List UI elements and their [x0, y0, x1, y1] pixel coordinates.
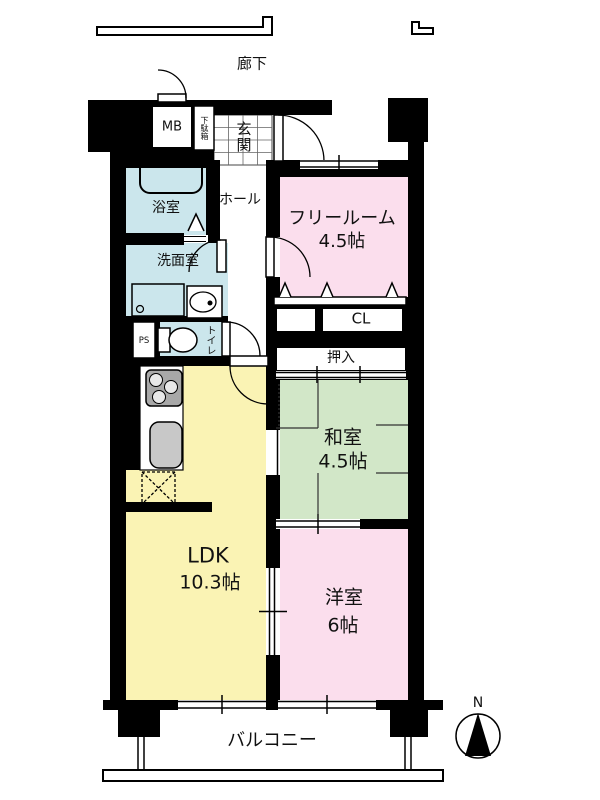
- toilet-door-leaf: [222, 322, 230, 356]
- washitsu-size: 4.5帖: [318, 453, 367, 472]
- closet-track: [274, 297, 406, 305]
- cl-label: CL: [352, 312, 371, 327]
- yoshitsu-size: 6帖: [327, 617, 358, 636]
- genkan-label: 玄関: [236, 121, 251, 153]
- freeroom-name: フリールーム: [288, 210, 395, 228]
- ldk-door-leaf: [230, 356, 268, 366]
- yoshitsu-name: 洋室: [325, 589, 363, 608]
- compass-north-label: N: [473, 696, 483, 710]
- washroom-door-leaf: [217, 240, 226, 272]
- entrance-door-leaf: [274, 115, 283, 161]
- oshiire-label: 押入: [327, 351, 355, 365]
- floor-plan-drawing: [0, 0, 600, 800]
- getabako-label: 下駄箱: [200, 116, 208, 140]
- closet-left-box: [276, 308, 316, 332]
- kitchen-sink: [150, 422, 182, 468]
- washitsu-name: 和室: [324, 429, 362, 448]
- ps-label: PS: [139, 337, 150, 346]
- toilet-label: トイレ: [204, 325, 214, 355]
- toilet-tank: [158, 328, 170, 352]
- toilet-bowl: [169, 328, 197, 352]
- balcony-label: バルコニー: [227, 732, 317, 750]
- floor-plan: 廊下 MB 下駄箱 玄関 浴室 ホール 洗面室 トイレ PS フリールーム 4.…: [0, 0, 600, 800]
- washing-machine: [132, 284, 184, 316]
- north-compass: [456, 713, 500, 758]
- hall-label: ホール: [219, 193, 261, 207]
- washroom-label: 洗面室: [157, 254, 199, 268]
- freeroom-door-leaf: [266, 237, 274, 277]
- toilet-door-arc: [226, 322, 260, 356]
- entrance-door-arc: [278, 115, 324, 161]
- corridor-label: 廊下: [237, 57, 267, 72]
- mb-label: MB: [162, 121, 182, 134]
- mb-door-leaf: [158, 94, 186, 102]
- freeroom-size: 4.5帖: [319, 233, 366, 251]
- ldk-name: LDK: [187, 546, 229, 567]
- ldk-size: 10.3帖: [179, 574, 240, 593]
- corridor-outline: [97, 17, 433, 35]
- washroom-sink: [187, 286, 222, 318]
- bathroom-label: 浴室: [152, 201, 180, 215]
